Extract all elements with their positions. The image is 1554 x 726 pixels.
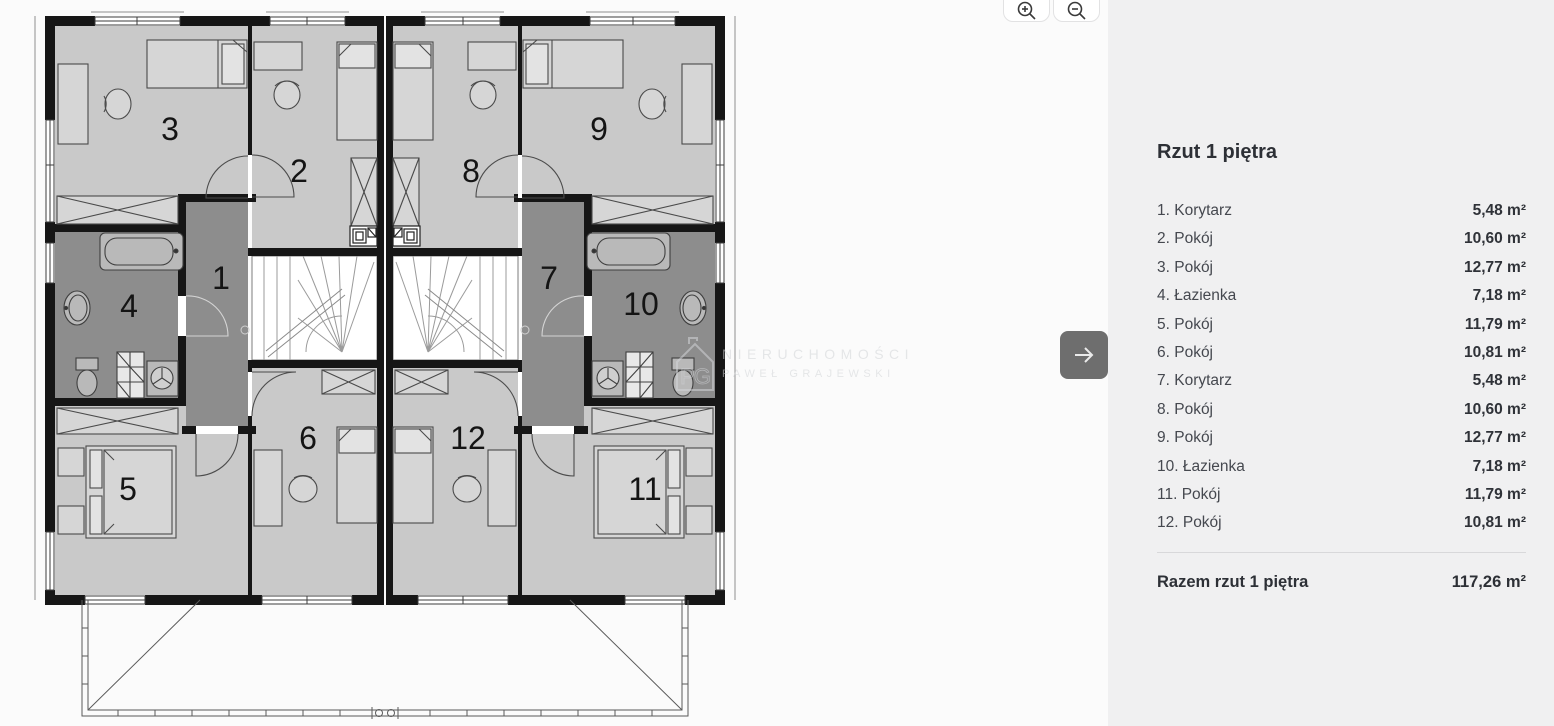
room-list-item-area: 5,48 m² <box>1473 197 1526 225</box>
room-number-3: 3 <box>161 111 179 147</box>
room-number-12: 12 <box>450 420 486 456</box>
room-number-11: 11 <box>628 471 661 507</box>
watermark-line1: NIERUCHOMOŚCI <box>722 345 914 362</box>
room-list-item-label: 4. Łazienka <box>1157 282 1236 310</box>
room-list-item: 3. Pokój12,77 m² <box>1157 254 1526 282</box>
room-list-item-label: 7. Korytarz <box>1157 367 1232 395</box>
next-plan-button[interactable] <box>1060 331 1108 379</box>
floor-plan-drawing: 1 2 3 4 5 6 7 8 9 10 11 12 PG NIERUCHOMO… <box>0 0 1108 726</box>
arrow-right-icon <box>1071 342 1097 368</box>
room-list-item-label: 2. Pokój <box>1157 225 1213 253</box>
room-number-8: 8 <box>462 153 480 189</box>
page-title: Rzut 1 piętra <box>1157 140 1526 164</box>
plan-canvas: 1 2 3 4 5 6 7 8 9 10 11 12 PG NIERUCHOMO… <box>0 0 1108 726</box>
room-number-10: 10 <box>623 286 659 322</box>
room-list-item-area: 11,79 m² <box>1465 311 1526 339</box>
magnifier-minus-icon <box>1066 0 1088 22</box>
room-list-item-label: 1. Korytarz <box>1157 197 1232 225</box>
watermark-monogram: PG <box>680 364 710 389</box>
room-list-item-area: 10,81 m² <box>1464 509 1526 537</box>
room-list: 1. Korytarz5,48 m²2. Pokój10,60 m²3. Pok… <box>1157 197 1526 538</box>
zoom-in-button[interactable] <box>1003 0 1050 22</box>
room-list-item-label: 10. Łazienka <box>1157 453 1245 481</box>
room-list-item-area: 11,79 m² <box>1465 481 1526 509</box>
room-list-item: 9. Pokój12,77 m² <box>1157 424 1526 452</box>
room-list-item-area: 7,18 m² <box>1473 282 1526 310</box>
room-number-2: 2 <box>290 153 308 189</box>
room-list-item-area: 12,77 m² <box>1464 254 1526 282</box>
room-list-item-area: 5,48 m² <box>1473 367 1526 395</box>
room-list-item-label: 9. Pokój <box>1157 424 1213 452</box>
room-list-item: 12. Pokój10,81 m² <box>1157 509 1526 537</box>
room-list-item-label: 6. Pokój <box>1157 339 1213 367</box>
room-list-item-label: 12. Pokój <box>1157 509 1222 537</box>
room-list-item: 11. Pokój11,79 m² <box>1157 481 1526 509</box>
room-summary-panel: Rzut 1 piętra 1. Korytarz5,48 m²2. Pokój… <box>1108 0 1554 726</box>
room-list-item: 5. Pokój11,79 m² <box>1157 311 1526 339</box>
room-list-item: 4. Łazienka7,18 m² <box>1157 282 1526 310</box>
room-list-item-area: 12,77 m² <box>1464 424 1526 452</box>
divider <box>1157 552 1526 553</box>
total-row: Razem rzut 1 piętra 117,26 m² <box>1157 569 1526 595</box>
room-list-item-area: 10,60 m² <box>1464 225 1526 253</box>
watermark-line2: PAWEŁ GRAJEWSKI <box>722 368 895 380</box>
total-label: Razem rzut 1 piętra <box>1157 569 1308 595</box>
room-list-item-label: 3. Pokój <box>1157 254 1213 282</box>
room-list-item-area: 10,60 m² <box>1464 396 1526 424</box>
room-number-5: 5 <box>119 471 137 507</box>
room-number-9: 9 <box>590 111 608 147</box>
total-value: 117,26 m² <box>1452 569 1526 595</box>
room-number-7: 7 <box>540 260 558 296</box>
room-list-item: 2. Pokój10,60 m² <box>1157 225 1526 253</box>
room-list-item-area: 7,18 m² <box>1473 453 1526 481</box>
room-list-item-label: 8. Pokój <box>1157 396 1213 424</box>
room-list-item: 10. Łazienka7,18 m² <box>1157 453 1526 481</box>
floor-plan-viewer: 1 2 3 4 5 6 7 8 9 10 11 12 PG NIERUCHOMO… <box>0 0 1554 726</box>
room-list-item: 6. Pokój10,81 m² <box>1157 339 1526 367</box>
room-number-1: 1 <box>212 260 230 296</box>
room-list-item: 8. Pokój10,60 m² <box>1157 396 1526 424</box>
room-number-6: 6 <box>299 420 317 456</box>
room-list-item-label: 5. Pokój <box>1157 311 1213 339</box>
magnifier-plus-icon <box>1016 0 1038 22</box>
roof-outline <box>82 600 688 719</box>
room-list-item-area: 10,81 m² <box>1464 339 1526 367</box>
room-list-item: 1. Korytarz5,48 m² <box>1157 197 1526 225</box>
room-list-item-label: 11. Pokój <box>1157 481 1220 509</box>
room-number-4: 4 <box>120 288 138 324</box>
room-list-item: 7. Korytarz5,48 m² <box>1157 367 1526 395</box>
zoom-out-button[interactable] <box>1053 0 1100 22</box>
